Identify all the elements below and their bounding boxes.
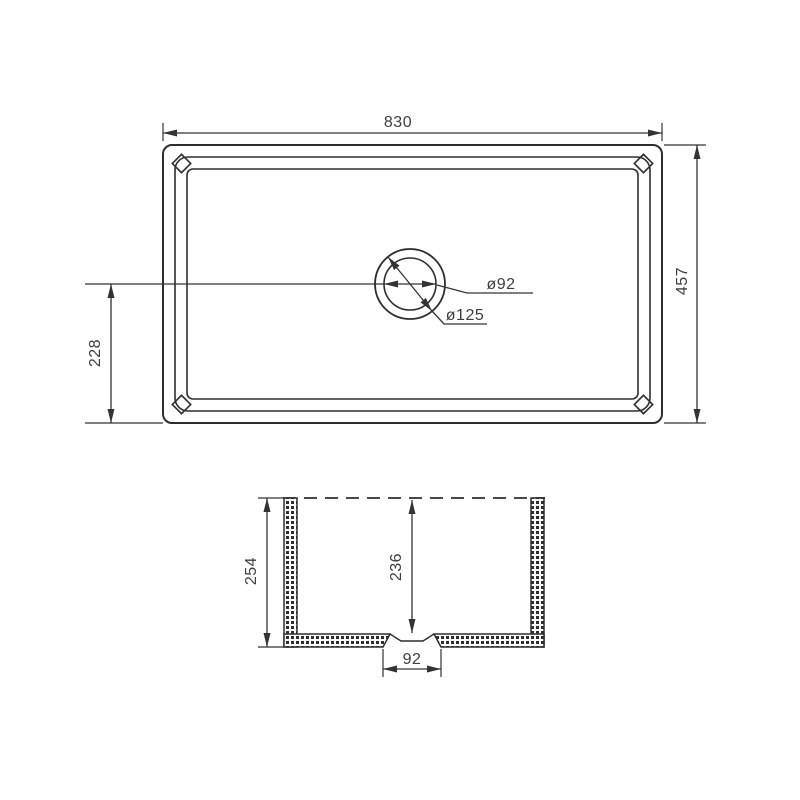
- top-view: 830 457 228 ø92: [85, 114, 706, 423]
- dimension-drain-offset-228: 228: [85, 284, 384, 423]
- drawing-page: 830 457 228 ø92: [0, 0, 800, 800]
- dim-228-label: 228: [87, 339, 104, 367]
- section-view: 254 236 92: [243, 498, 545, 677]
- dim-236-label: 236: [388, 553, 405, 581]
- dim-254-label: 254: [243, 557, 260, 585]
- drain-recess: [390, 634, 434, 641]
- dim-92-label: 92: [403, 651, 422, 668]
- dimension-height-457: 457: [664, 145, 706, 423]
- dimension-width-830: 830: [163, 114, 662, 141]
- dimension-inner-depth-236: 236: [388, 500, 412, 633]
- sink-technical-drawing: 830 457 228 ø92: [0, 0, 800, 800]
- dimension-outer-depth-254: 254: [243, 498, 284, 647]
- section-left-wall: [284, 498, 297, 647]
- dim-d92-label: ø92: [486, 276, 515, 293]
- section-floor-left: [284, 634, 390, 647]
- dim-457-label: 457: [674, 267, 691, 295]
- dim-d125-label: ø125: [446, 307, 484, 324]
- dim-830-label: 830: [384, 114, 412, 131]
- section-right-wall: [531, 498, 544, 647]
- leader-line: [437, 285, 533, 293]
- dimension-drain-width-92: 92: [383, 649, 441, 677]
- dimension-drain-outer-diameter: ø125: [388, 257, 487, 324]
- section-floor-right: [434, 634, 544, 647]
